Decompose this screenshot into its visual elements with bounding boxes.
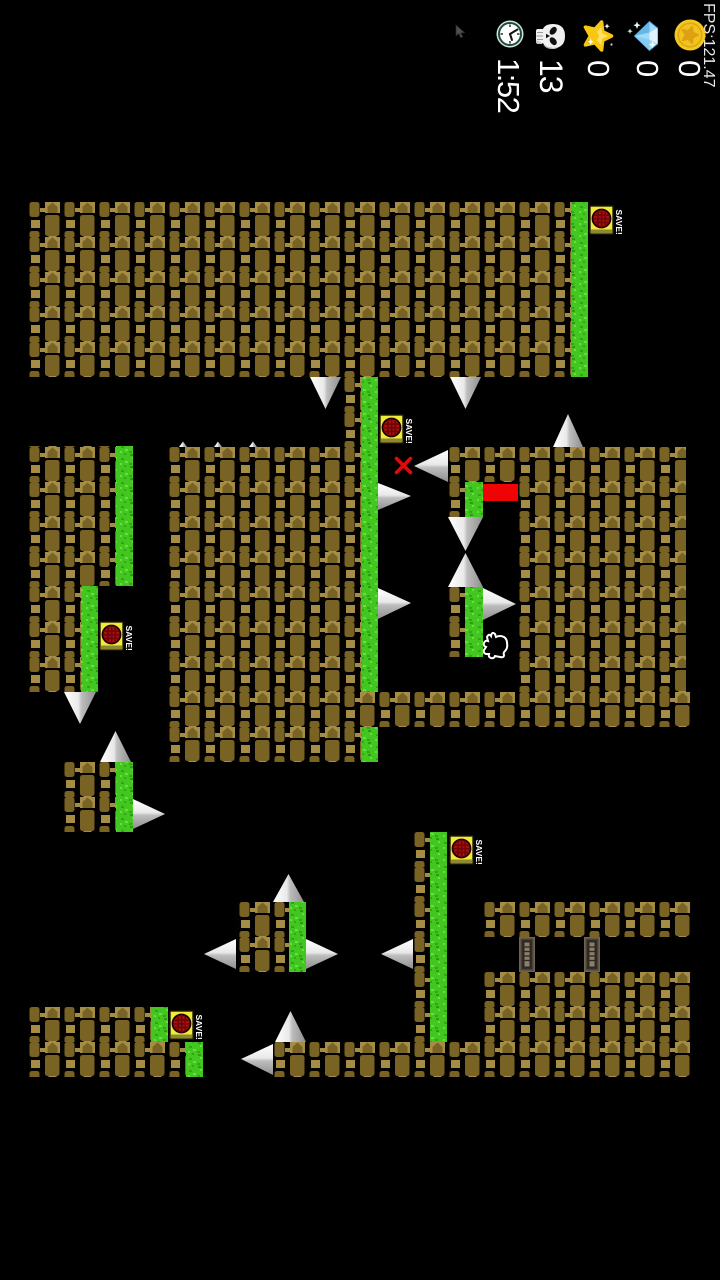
svg-text:0: 0 bbox=[581, 60, 616, 77]
svg-text:13: 13 bbox=[533, 59, 569, 93]
svg-text:0: 0 bbox=[672, 60, 707, 77]
svg-text:1:52: 1:52 bbox=[491, 58, 526, 113]
svg-text:0: 0 bbox=[630, 60, 665, 77]
